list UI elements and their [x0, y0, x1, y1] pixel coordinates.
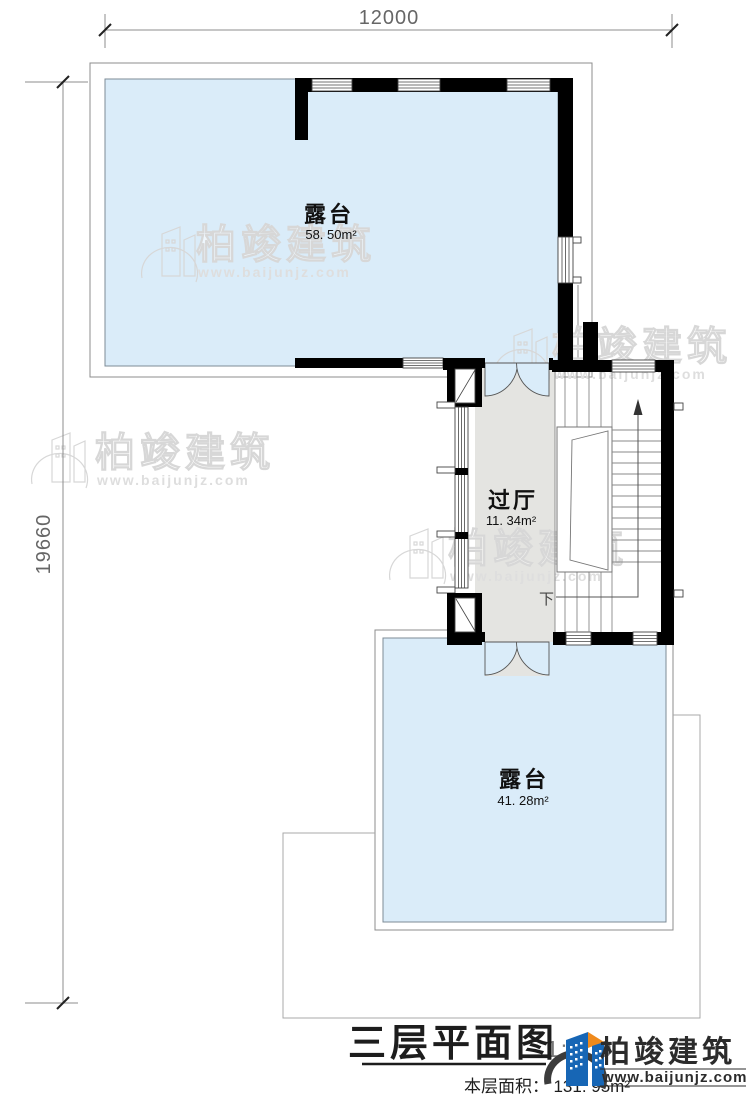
- room-label-lower-terrace: 露台 41. 28m²: [497, 767, 549, 808]
- brand-name: 柏竣建筑: [600, 1035, 736, 1069]
- window: [633, 632, 657, 645]
- door-jamb: [480, 632, 485, 642]
- floor-area-prefix: 本层面积：: [464, 1077, 549, 1096]
- room-name: 露台: [304, 202, 354, 227]
- window: [312, 79, 352, 91]
- room-label-hallway: 过厅 11. 34m²: [486, 488, 538, 528]
- room-name: 过厅: [488, 488, 538, 513]
- stair-down-label: 下: [539, 591, 554, 608]
- double-door-upper: [480, 358, 553, 399]
- wall: [661, 360, 674, 645]
- watermark-text: 柏竣建筑: [95, 431, 275, 475]
- mullion: [455, 532, 468, 539]
- window: [455, 407, 468, 588]
- wall-pier: [583, 322, 598, 360]
- window: [566, 632, 591, 645]
- wall-stub: [295, 78, 308, 140]
- window-sill: [573, 237, 581, 243]
- window-sill: [437, 467, 455, 473]
- room-area: 41. 28m²: [497, 793, 549, 808]
- wall: [558, 79, 573, 366]
- window-sill: [674, 590, 683, 597]
- corner-window: [455, 369, 475, 403]
- brand-url: www.baijunjz.com: [601, 1069, 747, 1086]
- window: [507, 79, 550, 91]
- room-name: 露台: [499, 767, 549, 792]
- watermark-url: www.baijunjz.com: [197, 264, 351, 280]
- window: [398, 79, 440, 91]
- stair-landing: [557, 427, 612, 572]
- stair-break-line: [570, 431, 608, 570]
- corner-window: [455, 598, 475, 632]
- window-sill: [674, 403, 683, 410]
- floor-plan-page: 柏竣建筑 www.baijunjz.com 柏竣建筑 www.baijunjz.…: [0, 0, 750, 1099]
- window: [403, 358, 443, 368]
- watermark-url: www.baijunjz.com: [96, 472, 250, 488]
- window-sill: [437, 531, 455, 537]
- stairwell: 下: [539, 322, 683, 645]
- wall: [295, 358, 403, 368]
- brand-logo: 柏竣建筑 www.baijunjz.com: [548, 1032, 748, 1088]
- window-sill: [437, 587, 455, 593]
- page-title: 三层平面图: [348, 1023, 558, 1065]
- room-area: 11. 34m²: [486, 513, 537, 528]
- dimension-left-value: 19660: [33, 514, 55, 575]
- dimension-top-value: 12000: [359, 7, 420, 29]
- mullion: [455, 468, 468, 475]
- door-jamb: [480, 358, 485, 368]
- floor-plan-drawing: 柏竣建筑 www.baijunjz.com 柏竣建筑 www.baijunjz.…: [0, 0, 750, 1099]
- window: [612, 360, 655, 372]
- room-label-upper-terrace: 露台 58. 50m²: [304, 202, 357, 242]
- window-sill: [437, 402, 455, 408]
- window-sill: [573, 277, 581, 283]
- room-area: 58. 50m²: [305, 227, 357, 242]
